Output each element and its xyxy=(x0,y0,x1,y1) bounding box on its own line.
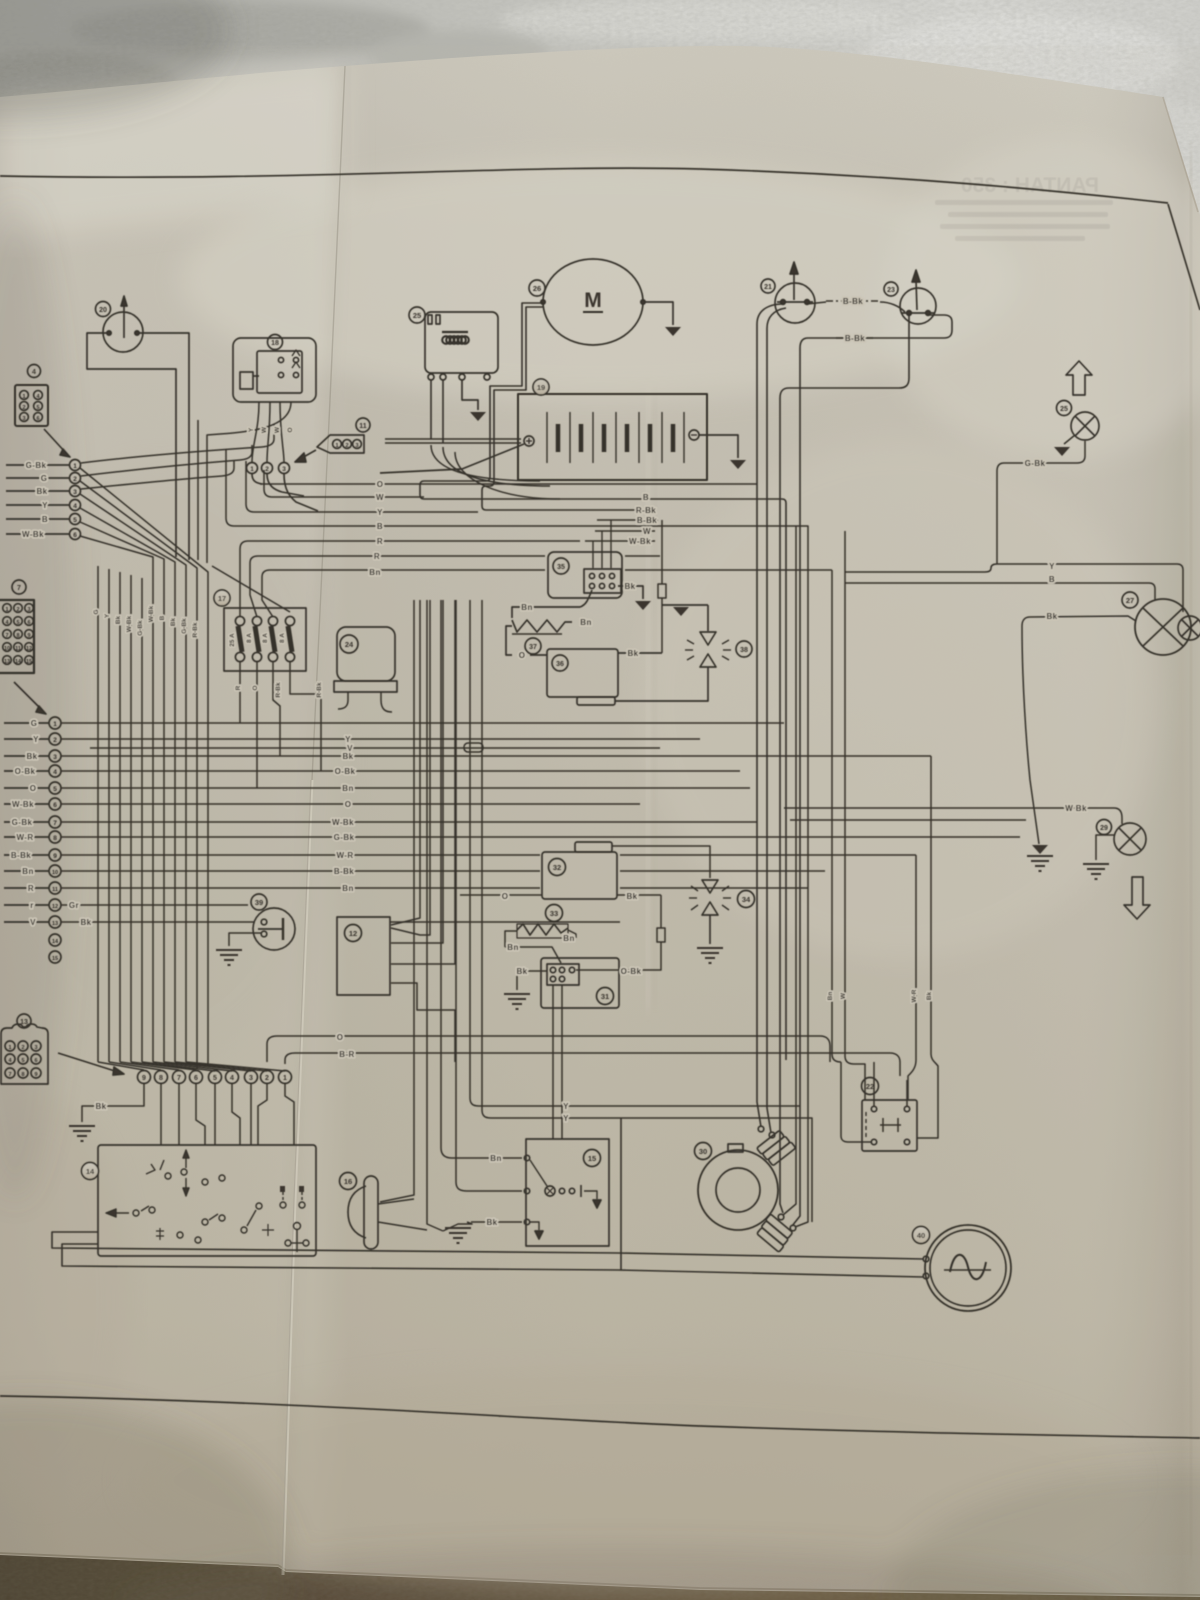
svg-text:9: 9 xyxy=(27,633,30,639)
svg-text:9: 9 xyxy=(142,1075,146,1082)
svg-text:Bk: Bk xyxy=(26,752,37,761)
svg-text:Bk: Bk xyxy=(95,1102,106,1111)
svg-text:7: 7 xyxy=(17,585,21,592)
svg-text:1: 1 xyxy=(8,1045,11,1051)
svg-text:Y: Y xyxy=(42,501,48,510)
svg-text:W-R: W-R xyxy=(336,851,353,860)
svg-text:16: 16 xyxy=(344,1177,352,1186)
svg-text:40: 40 xyxy=(917,1231,925,1240)
svg-text:r: r xyxy=(30,901,34,910)
svg-text:11: 11 xyxy=(15,646,21,652)
svg-text:O: O xyxy=(337,1033,344,1042)
svg-text:2: 2 xyxy=(53,737,57,744)
svg-text:33: 33 xyxy=(550,909,558,918)
svg-text:Bn: Bn xyxy=(521,603,532,612)
svg-text:Bn: Bn xyxy=(580,618,591,627)
svg-text:O: O xyxy=(377,480,384,489)
svg-text:15: 15 xyxy=(26,659,32,665)
svg-text:6: 6 xyxy=(36,416,39,422)
svg-text:10: 10 xyxy=(52,870,58,876)
svg-text:R: R xyxy=(28,884,34,893)
svg-text:M: M xyxy=(584,289,602,312)
svg-text:11: 11 xyxy=(52,887,58,893)
svg-text:12: 12 xyxy=(349,929,357,938)
svg-text:B: B xyxy=(159,615,166,620)
svg-text:W: W xyxy=(840,992,847,999)
svg-text:3: 3 xyxy=(355,443,358,449)
svg-text:1: 1 xyxy=(5,607,8,613)
svg-text:B: B xyxy=(42,515,48,524)
svg-text:W-Bk: W-Bk xyxy=(22,530,44,539)
svg-text:Gr: Gr xyxy=(69,901,79,910)
svg-text:O: O xyxy=(345,800,352,809)
svg-text:B-Bk: B-Bk xyxy=(11,851,31,860)
svg-text:Bn: Bn xyxy=(563,934,574,943)
svg-text:Y: Y xyxy=(563,1102,569,1111)
svg-text:5: 5 xyxy=(53,786,57,793)
svg-text:8: 8 xyxy=(53,835,57,842)
svg-text:B: B xyxy=(1049,575,1055,584)
svg-text:24: 24 xyxy=(345,640,354,649)
svg-text:23: 23 xyxy=(887,287,895,294)
svg-text:8 A: 8 A xyxy=(262,633,269,643)
svg-text:Y: Y xyxy=(377,508,383,517)
svg-text:1: 1 xyxy=(335,443,338,449)
svg-text:25: 25 xyxy=(1060,406,1068,413)
svg-text:8 A: 8 A xyxy=(246,633,253,643)
svg-text:26: 26 xyxy=(533,284,541,293)
svg-text:36: 36 xyxy=(556,661,564,668)
svg-text:6: 6 xyxy=(194,1075,198,1082)
svg-text:12: 12 xyxy=(52,904,58,910)
svg-text:Bk: Bk xyxy=(926,991,933,1000)
svg-text:Bk: Bk xyxy=(80,918,91,927)
svg-text:Y: Y xyxy=(33,735,39,744)
svg-text:R-Bk: R-Bk xyxy=(636,506,656,515)
svg-text:Y: Y xyxy=(345,735,351,744)
svg-text:11: 11 xyxy=(359,423,367,430)
svg-text:Bn: Bn xyxy=(490,1154,501,1163)
svg-text:2: 2 xyxy=(265,1075,269,1082)
svg-text:W-Bk: W-Bk xyxy=(332,818,354,827)
svg-text:B: B xyxy=(643,493,649,502)
svg-text:9: 9 xyxy=(53,853,57,860)
svg-text:12: 12 xyxy=(26,646,32,652)
svg-text:4: 4 xyxy=(230,1075,234,1082)
svg-text:W-Bk: W-Bk xyxy=(12,800,34,809)
svg-text:3: 3 xyxy=(73,489,77,496)
svg-text:14: 14 xyxy=(52,939,59,945)
svg-text:B-Bk: B-Bk xyxy=(843,297,863,306)
svg-text:R-Bk: R-Bk xyxy=(316,682,323,698)
svg-text:3: 3 xyxy=(27,607,30,613)
svg-text:G-Bk: G-Bk xyxy=(137,620,144,636)
svg-text:2: 2 xyxy=(16,607,19,613)
svg-text:7: 7 xyxy=(5,633,8,639)
svg-text:W: W xyxy=(274,426,281,433)
svg-text:3: 3 xyxy=(22,416,25,422)
svg-text:O-Bk: O-Bk xyxy=(15,767,36,776)
svg-text:Y: Y xyxy=(104,613,111,618)
svg-text:3: 3 xyxy=(53,754,57,761)
svg-text:4: 4 xyxy=(32,369,36,376)
svg-text:G: G xyxy=(41,474,48,483)
svg-text:Bn: Bn xyxy=(22,867,33,876)
svg-text:5: 5 xyxy=(36,405,39,411)
svg-text:6: 6 xyxy=(34,1058,37,1064)
svg-text:5: 5 xyxy=(16,620,19,626)
svg-text:15: 15 xyxy=(52,956,58,962)
svg-text:G-Bk: G-Bk xyxy=(12,818,33,827)
svg-text:38: 38 xyxy=(740,647,748,654)
svg-text:2: 2 xyxy=(21,1045,24,1051)
svg-text:6: 6 xyxy=(73,532,77,539)
svg-text:W: W xyxy=(643,527,651,536)
svg-text:B: B xyxy=(377,522,383,531)
svg-text:G: G xyxy=(93,609,100,614)
svg-text:8 A: 8 A xyxy=(279,633,286,643)
svg-text:1: 1 xyxy=(22,394,25,400)
svg-text:1: 1 xyxy=(283,1075,287,1082)
svg-text:W-R: W-R xyxy=(911,989,918,1002)
svg-text:B-Bk: B-Bk xyxy=(334,867,354,876)
svg-text:Y: Y xyxy=(1049,562,1055,571)
svg-text:Bn: Bn xyxy=(342,784,353,793)
svg-text:4: 4 xyxy=(53,769,57,776)
svg-text:32: 32 xyxy=(553,863,561,872)
svg-text:O: O xyxy=(502,892,509,901)
svg-text:W-R: W-R xyxy=(16,833,33,842)
svg-text:6: 6 xyxy=(27,620,30,626)
svg-text:4: 4 xyxy=(73,503,77,510)
svg-text:Bk: Bk xyxy=(115,615,122,624)
svg-text:5: 5 xyxy=(73,517,77,524)
svg-text:Bn: Bn xyxy=(507,943,518,952)
svg-text:15: 15 xyxy=(588,1154,596,1163)
svg-text:8: 8 xyxy=(21,1072,24,1078)
svg-text:Bk: Bk xyxy=(1046,612,1057,621)
svg-text:B-Bk: B-Bk xyxy=(845,334,865,343)
svg-text:1: 1 xyxy=(53,721,57,728)
svg-text:27: 27 xyxy=(1126,596,1134,605)
svg-text:O: O xyxy=(252,685,259,690)
svg-text:W: W xyxy=(376,493,384,502)
svg-text:6: 6 xyxy=(53,802,57,809)
svg-text:34: 34 xyxy=(742,895,751,904)
svg-text:Bk: Bk xyxy=(486,1218,497,1227)
svg-text:Bn: Bn xyxy=(827,992,834,1001)
svg-text:31: 31 xyxy=(601,992,609,1001)
svg-text:B-R: B-R xyxy=(339,1050,354,1059)
svg-text:39: 39 xyxy=(255,898,263,907)
svg-text:G: G xyxy=(31,719,38,728)
svg-text:O: O xyxy=(287,427,294,432)
svg-text:G-Bk: G-Bk xyxy=(334,833,355,842)
svg-text:25: 25 xyxy=(413,311,421,320)
svg-text:Bn: Bn xyxy=(342,884,353,893)
svg-text:V: V xyxy=(30,918,36,927)
svg-text:R: R xyxy=(235,685,242,690)
svg-text:14: 14 xyxy=(86,1167,95,1176)
svg-text:3: 3 xyxy=(34,1045,37,1051)
svg-text:O: O xyxy=(30,784,37,793)
svg-text:O-Bk: O-Bk xyxy=(621,967,642,976)
svg-text:10: 10 xyxy=(4,646,10,652)
svg-text:22: 22 xyxy=(866,1082,874,1091)
svg-text:W: W xyxy=(261,426,268,433)
svg-text:30: 30 xyxy=(699,1147,707,1156)
svg-text:G-Bk: G-Bk xyxy=(26,461,47,470)
svg-text:8: 8 xyxy=(159,1075,163,1082)
svg-text:13: 13 xyxy=(52,921,58,927)
svg-text:Y: Y xyxy=(563,1114,569,1123)
svg-text:21: 21 xyxy=(764,284,772,291)
svg-text:W-Bk: W-Bk xyxy=(148,605,155,622)
svg-text:Bk: Bk xyxy=(36,487,47,496)
svg-text:R: R xyxy=(374,552,380,561)
svg-text:Bn: Bn xyxy=(369,568,380,577)
svg-text:35: 35 xyxy=(557,564,565,571)
svg-text:R: R xyxy=(377,537,383,546)
svg-text:17: 17 xyxy=(218,594,226,603)
svg-text:G-Bk: G-Bk xyxy=(1025,459,1046,468)
svg-text:18: 18 xyxy=(271,340,279,347)
svg-text:20: 20 xyxy=(99,307,107,314)
svg-text:Bk: Bk xyxy=(516,967,527,976)
svg-text:2: 2 xyxy=(265,466,269,473)
svg-text:Bk: Bk xyxy=(627,649,638,658)
svg-text:Bk: Bk xyxy=(626,892,637,901)
svg-text:37: 37 xyxy=(529,644,537,651)
svg-text:Bk: Bk xyxy=(342,752,353,761)
svg-text:G-Bk: G-Bk xyxy=(181,618,188,634)
svg-text:W Bk: W Bk xyxy=(1065,804,1087,813)
svg-text:R-Bk: R-Bk xyxy=(275,682,282,698)
svg-text:2: 2 xyxy=(345,443,348,449)
svg-text:14: 14 xyxy=(15,659,22,665)
svg-text:25 A: 25 A xyxy=(229,633,236,647)
svg-text:2: 2 xyxy=(73,476,77,483)
svg-text:W-Bk: W-Bk xyxy=(629,537,651,546)
svg-text:Bk: Bk xyxy=(170,617,177,626)
svg-text:B-Bk: B-Bk xyxy=(637,516,657,525)
svg-text:2: 2 xyxy=(22,405,25,411)
svg-text:13: 13 xyxy=(20,1019,28,1026)
svg-text:19: 19 xyxy=(537,383,545,392)
svg-text:Bk: Bk xyxy=(624,582,635,591)
svg-text:O: O xyxy=(519,651,526,660)
svg-text:5: 5 xyxy=(21,1058,24,1064)
svg-text:29: 29 xyxy=(1100,825,1108,832)
svg-text:Y: Y xyxy=(248,427,255,432)
svg-text:R-Bk: R-Bk xyxy=(192,622,199,638)
svg-text:9: 9 xyxy=(34,1072,37,1078)
svg-text:7: 7 xyxy=(53,820,57,827)
svg-text:1: 1 xyxy=(73,463,77,470)
svg-text:7: 7 xyxy=(177,1075,181,1082)
svg-text:5: 5 xyxy=(213,1075,217,1082)
svg-text:3: 3 xyxy=(249,1075,253,1082)
svg-text:13: 13 xyxy=(4,659,10,665)
svg-text:W-Bk: W-Bk xyxy=(126,615,133,632)
svg-text:1: 1 xyxy=(250,466,254,473)
svg-text:3: 3 xyxy=(282,466,286,473)
svg-text:8: 8 xyxy=(16,633,19,639)
svg-text:7: 7 xyxy=(8,1072,11,1078)
svg-text:O-Bk: O-Bk xyxy=(335,767,356,776)
